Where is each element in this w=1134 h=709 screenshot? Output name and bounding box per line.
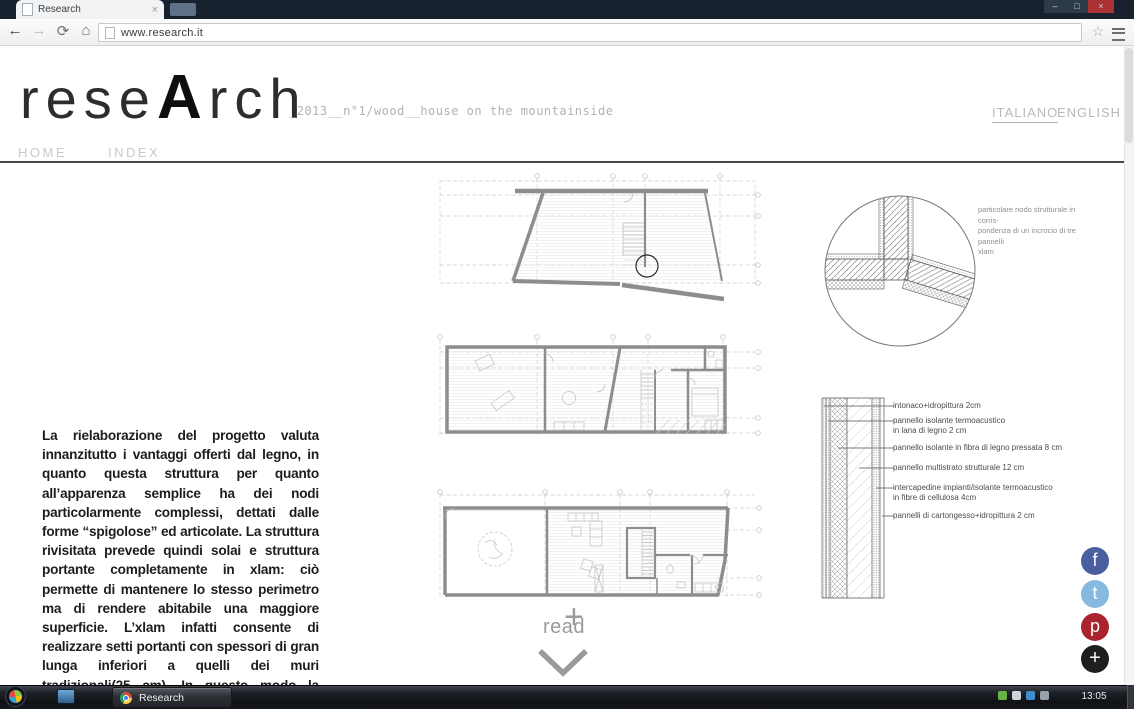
windows-flag-icon [8, 689, 23, 704]
tab-title: Research [38, 4, 148, 15]
chrome-icon [120, 692, 132, 704]
share-plus-icon[interactable]: + [1081, 645, 1109, 673]
stair-ground [642, 528, 655, 578]
window-minimize-button[interactable]: – [1044, 0, 1066, 13]
tab-close-icon[interactable]: × [152, 4, 158, 16]
show-desktop-button[interactable] [1127, 685, 1134, 709]
issue-subtitle: _2013__n°1/wood__house on the mountainsi… [289, 104, 613, 118]
wall-layer-label: pannelli di cartongesso+idropittura 2 cm [893, 511, 1035, 521]
nav-index-link[interactable]: INDEX [108, 145, 160, 160]
header-divider [0, 161, 1124, 163]
wall-layer-label: intonaco+idropittura 2cm [893, 401, 981, 411]
read-more-chevron-icon[interactable] [537, 648, 589, 678]
window-close-button[interactable]: × [1088, 0, 1114, 13]
pinterest-icon[interactable]: p [1081, 613, 1109, 641]
facebook-icon[interactable]: f [1081, 547, 1109, 575]
read-more-link[interactable]: read [543, 616, 585, 639]
start-button[interactable] [5, 686, 26, 707]
floor-plan-ground-drawing [437, 487, 767, 602]
twitter-icon[interactable]: t [1081, 580, 1109, 608]
tree [478, 532, 512, 566]
wall-section-drawing [820, 394, 894, 600]
detail-annotation: particolare nodo strutturale in corris- … [978, 205, 1092, 258]
browser-tab[interactable]: Research × [16, 0, 164, 19]
home-icon[interactable]: ⌂ [76, 22, 96, 39]
language-english-link[interactable]: ENGLISH [1057, 105, 1121, 120]
logo-accent: A [157, 63, 209, 132]
screenshot-root: Research × – □ × ← → ⟳ ⌂ www.research.it… [0, 0, 1134, 709]
wall-layer-label: pannello isolante termoacusticoin lana d… [893, 416, 1005, 436]
scrollbar-thumb[interactable] [1125, 48, 1133, 143]
menu-icon[interactable] [1112, 28, 1125, 41]
site-logo[interactable]: reseArch [20, 68, 308, 129]
new-tab-button[interactable] [170, 3, 196, 16]
back-icon[interactable]: ← [5, 22, 25, 39]
taskbar-app-label: Research [139, 692, 184, 704]
address-bar[interactable]: www.research.it [98, 23, 1082, 42]
forward-icon[interactable]: → [29, 22, 49, 39]
tray-icon-4[interactable] [1040, 691, 1049, 700]
wall-layer-label: pannello isolante in fibra di legno pres… [893, 443, 1062, 453]
refresh-icon[interactable]: ⟳ [53, 22, 73, 40]
tray-icon-3[interactable] [1026, 691, 1035, 700]
logo-part2: rch [209, 67, 308, 130]
taskbar-pinned-icon[interactable] [57, 689, 75, 704]
language-italiano-link[interactable]: ITALIANO [992, 105, 1058, 123]
url-text: www.research.it [121, 27, 203, 39]
wall-layer-label: pannello multistrato strutturale 12 cm [893, 463, 1024, 473]
taskbar-clock[interactable]: 13:05 [1068, 685, 1120, 709]
window-maximize-button[interactable]: □ [1066, 0, 1088, 13]
page-icon [105, 27, 115, 39]
floor-plan-top-drawing [437, 170, 762, 302]
article-paragraph: La rielaborazione del progetto valuta in… [42, 426, 319, 709]
tray-icon-2[interactable] [1012, 691, 1021, 700]
wall-layer-label: intercapedine impianti/isolante termoacu… [893, 483, 1053, 503]
tray-icon-1[interactable] [998, 691, 1007, 700]
nav-home-link[interactable]: HOME [18, 145, 67, 160]
tab-favicon-icon [22, 3, 33, 16]
logo-part1: rese [20, 67, 157, 130]
bookmark-star-icon[interactable]: ☆ [1088, 23, 1108, 40]
floor-plan-middle-drawing [437, 332, 762, 444]
taskbar-running-app-button[interactable]: Research [112, 687, 232, 708]
structural-node-detail-drawing [822, 193, 980, 351]
